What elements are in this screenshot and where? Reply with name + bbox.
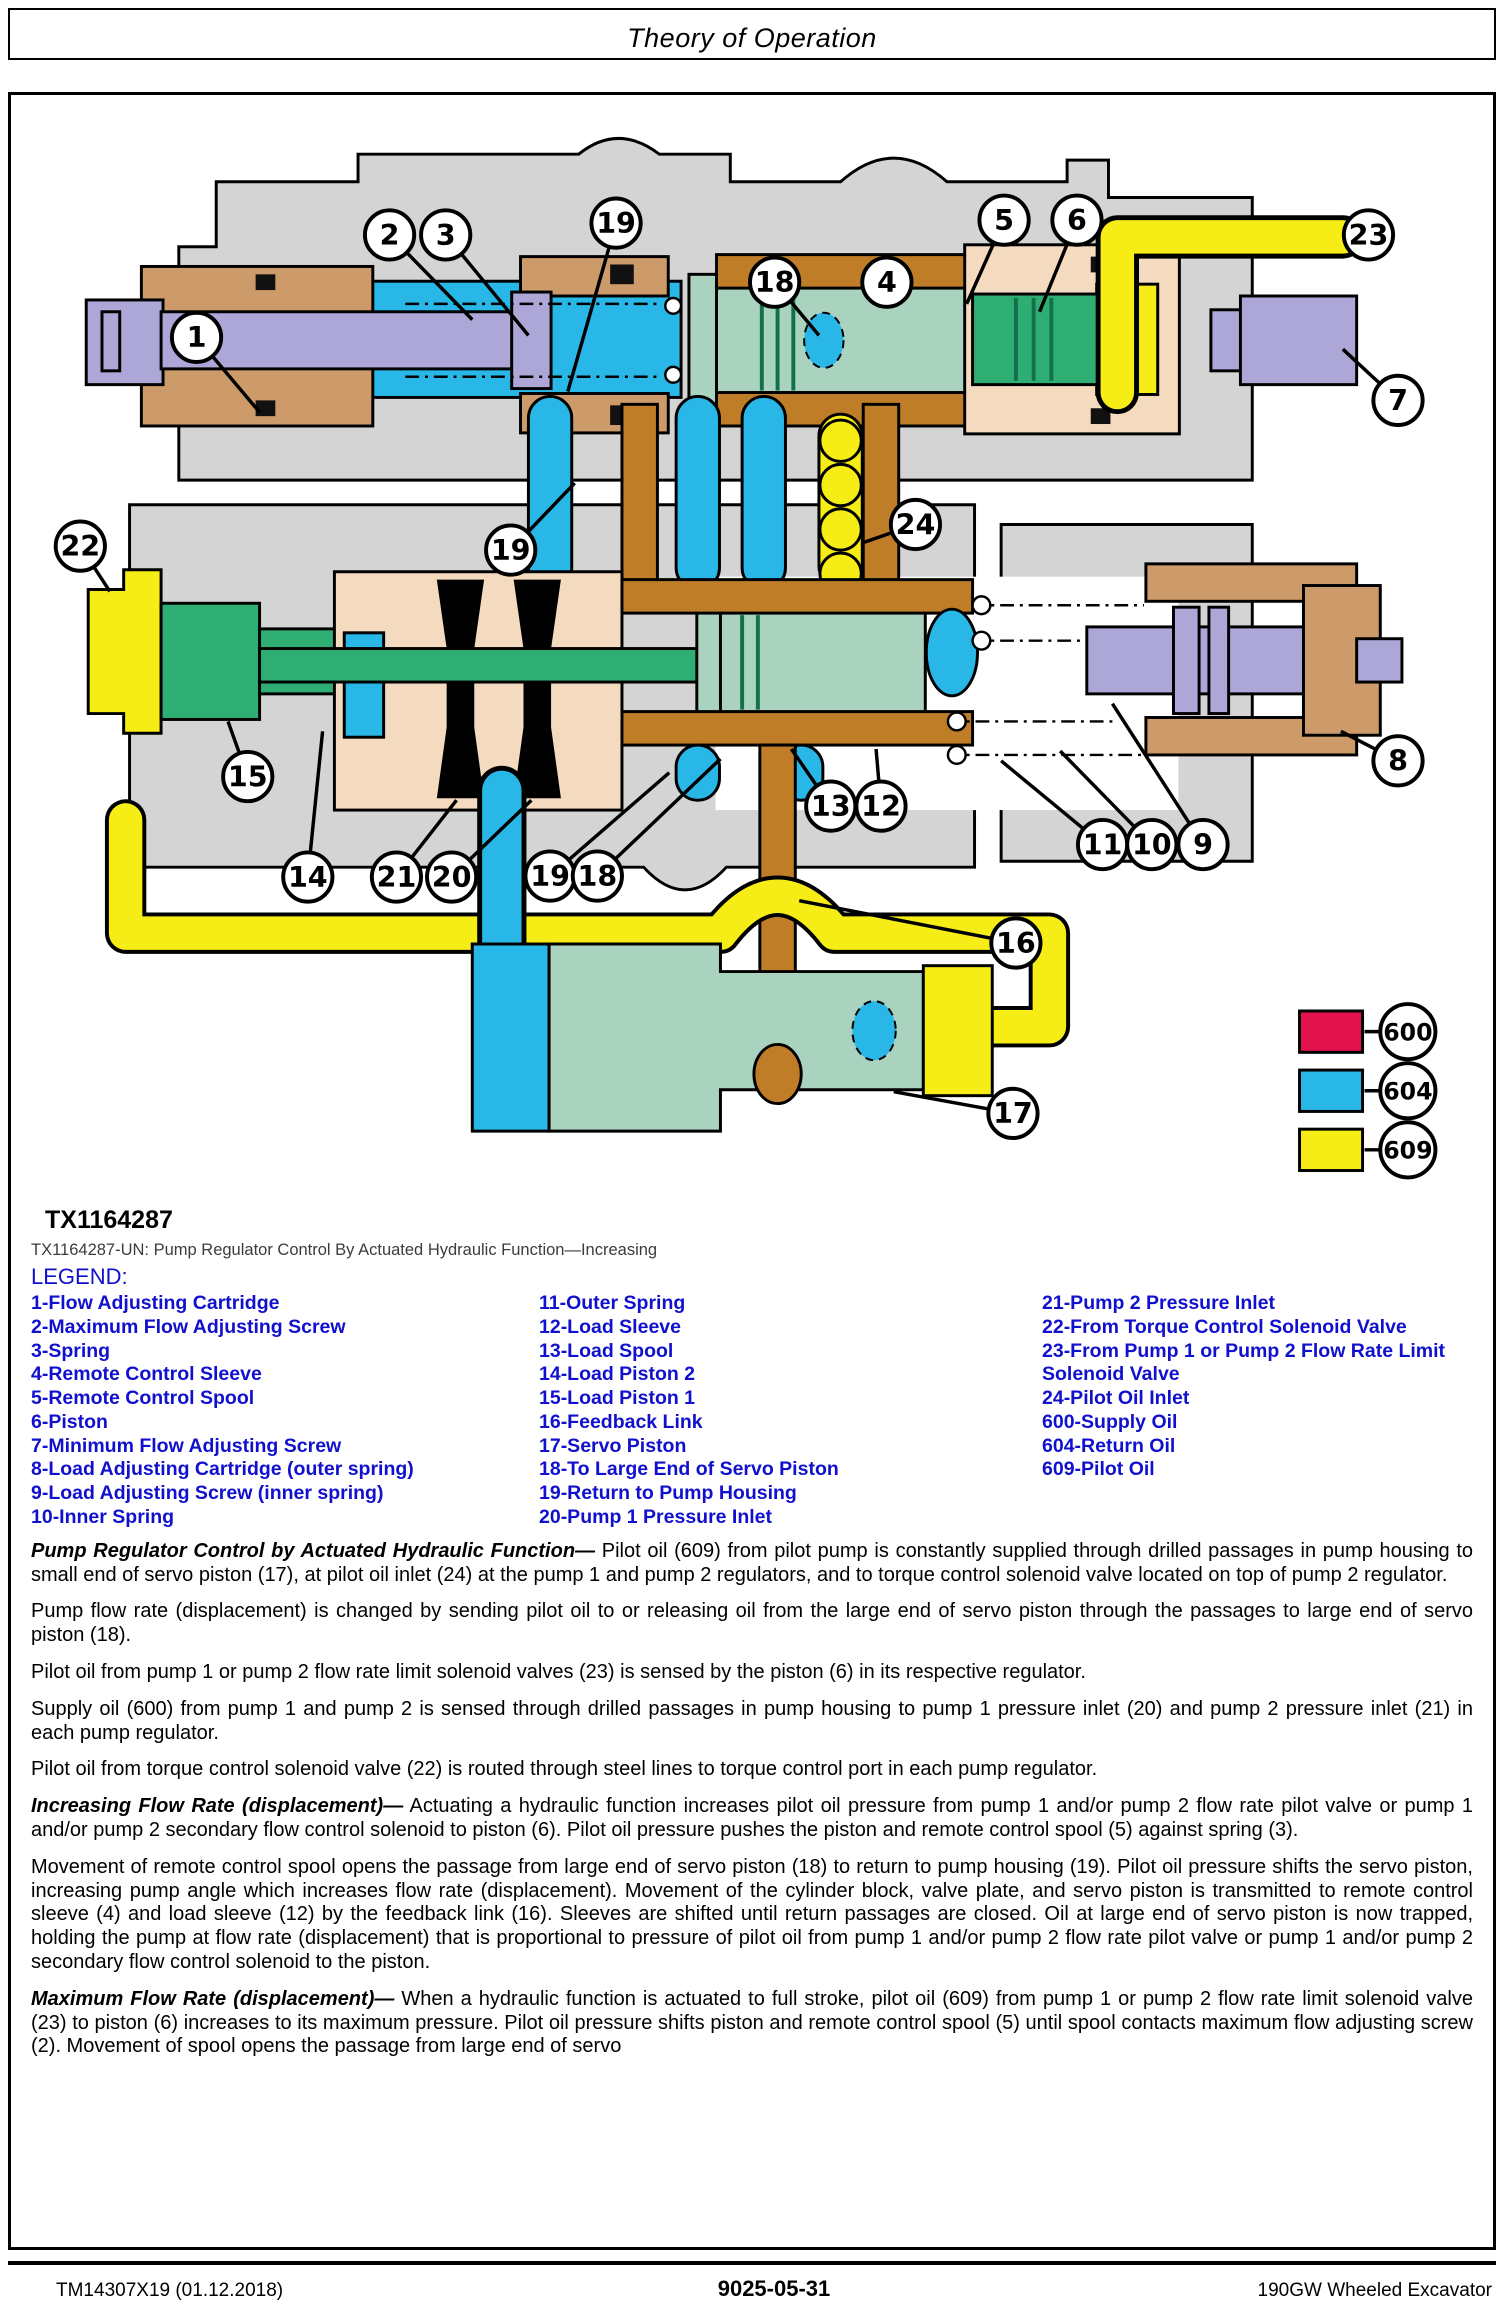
legend-item: 14-Load Piston 2 xyxy=(539,1363,1034,1387)
header-box: Theory of Operation xyxy=(8,8,1496,60)
legend-column-3: 21-Pump 2 Pressure Inlet 22-From Torque … xyxy=(1042,1292,1473,1530)
legend-item: 12-Load Sleeve xyxy=(539,1316,1034,1340)
legend-item: 23-From Pump 1 or Pump 2 Flow Rate Limit… xyxy=(1042,1340,1473,1388)
svg-text:3: 3 xyxy=(436,218,456,252)
max-flow-adjusting-screw-head xyxy=(86,300,163,385)
paragraph-lead: Pump Regulator Control by Actuated Hydra… xyxy=(31,1540,595,1562)
color-key xyxy=(1300,1011,1363,1171)
svg-text:18: 18 xyxy=(755,265,795,299)
legend-item: 3-Spring xyxy=(31,1340,531,1364)
svg-text:13: 13 xyxy=(811,789,851,823)
svg-text:604: 604 xyxy=(1383,1078,1432,1106)
paragraph: Increasing Flow Rate (displacement)— Act… xyxy=(31,1795,1473,1843)
legend-item: 17-Servo Piston xyxy=(539,1435,1034,1459)
figure-id: TX1164287 xyxy=(45,1206,1473,1235)
figure: 1231918456237221924151421201918131211109… xyxy=(31,101,1469,1204)
paragraph-lead: Increasing Flow Rate (displacement)— xyxy=(31,1795,403,1817)
legend-item: 5-Remote Control Spool xyxy=(31,1387,531,1411)
legend-item: 1-Flow Adjusting Cartridge xyxy=(31,1292,531,1316)
svg-text:11: 11 xyxy=(1083,827,1123,861)
legend-item: 24-Pilot Oil Inlet xyxy=(1042,1387,1473,1411)
torque-control-inlet-cap xyxy=(88,570,161,733)
body-text: Pump Regulator Control by Actuated Hydra… xyxy=(31,1540,1473,2059)
paragraph: Maximum Flow Rate (displacement)— When a… xyxy=(31,1988,1473,2059)
legend-column-1: 1-Flow Adjusting Cartridge 2-Maximum Flo… xyxy=(31,1292,531,1530)
paragraph: Pump flow rate (displacement) is changed… xyxy=(31,1600,1473,1648)
legend-item: 21-Pump 2 Pressure Inlet xyxy=(1042,1292,1473,1316)
svg-text:19: 19 xyxy=(596,206,636,240)
legend-item: 8-Load Adjusting Cartridge (outer spring… xyxy=(31,1458,531,1482)
legend-item: 609-Pilot Oil xyxy=(1042,1458,1473,1482)
svg-text:7: 7 xyxy=(1388,383,1408,417)
legend-item: 6-Piston xyxy=(31,1411,531,1435)
svg-text:10: 10 xyxy=(1132,827,1172,861)
svg-text:14: 14 xyxy=(288,860,328,894)
svg-text:18: 18 xyxy=(577,859,617,893)
footer-page-number: 9025-05-31 xyxy=(476,2276,1072,2302)
svg-text:15: 15 xyxy=(228,759,268,793)
pump-regulator-diagram: 1231918456237221924151421201918131211109… xyxy=(31,101,1469,1204)
legend-item: 16-Feedback Link xyxy=(539,1411,1034,1435)
paragraph: Pilot oil from pump 1 or pump 2 flow rat… xyxy=(31,1661,1473,1685)
legend-item: 600-Supply Oil xyxy=(1042,1411,1473,1435)
return-oil-swatch xyxy=(1300,1070,1363,1111)
load-sleeve xyxy=(622,580,973,613)
svg-text:6: 6 xyxy=(1067,203,1087,237)
supply-oil-swatch xyxy=(1300,1011,1363,1052)
legend-item: 20-Pump 1 Pressure Inlet xyxy=(539,1506,1034,1530)
legend-item: 22-From Torque Control Solenoid Valve xyxy=(1042,1316,1473,1340)
svg-text:16: 16 xyxy=(996,926,1036,960)
legend-title: LEGEND: xyxy=(31,1264,1473,1290)
legend-item: 4-Remote Control Sleeve xyxy=(31,1363,531,1387)
legend-item: 7-Minimum Flow Adjusting Screw xyxy=(31,1435,531,1459)
svg-text:21: 21 xyxy=(377,860,417,894)
legend-item: 13-Load Spool xyxy=(539,1340,1034,1364)
legend-item: 11-Outer Spring xyxy=(539,1292,1034,1316)
svg-text:12: 12 xyxy=(861,789,901,823)
load-spool xyxy=(720,611,925,713)
footer-manual-id: TM14307X19 (01.12.2018) xyxy=(8,2280,476,2302)
servo-large-end-chamber xyxy=(923,966,992,1096)
svg-text:9: 9 xyxy=(1193,827,1213,861)
legend-item: 9-Load Adjusting Screw (inner spring) xyxy=(31,1482,531,1506)
legend-column-2: 11-Outer Spring 12-Load Sleeve 13-Load S… xyxy=(539,1292,1034,1530)
legend-item: 19-Return to Pump Housing xyxy=(539,1482,1034,1506)
svg-text:2: 2 xyxy=(380,218,400,252)
svg-text:19: 19 xyxy=(530,859,570,893)
svg-text:23: 23 xyxy=(1349,218,1389,252)
load-piston-1 xyxy=(161,603,259,719)
svg-text:1: 1 xyxy=(187,320,207,354)
svg-text:5: 5 xyxy=(994,203,1014,237)
svg-text:19: 19 xyxy=(491,533,531,567)
paragraph: Pilot oil from torque control solenoid v… xyxy=(31,1758,1473,1782)
piston xyxy=(973,294,1099,385)
paragraph-lead: Maximum Flow Rate (displacement)— xyxy=(31,1988,394,2010)
paragraph: Movement of remote control spool opens t… xyxy=(31,1856,1473,1975)
footer-rule xyxy=(8,2261,1496,2265)
content-box: 1231918456237221924151421201918131211109… xyxy=(8,92,1496,2250)
legend-item: 2-Maximum Flow Adjusting Screw xyxy=(31,1316,531,1340)
svg-text:600: 600 xyxy=(1383,1019,1432,1047)
footer: TM14307X19 (01.12.2018) 9025-05-31 190GW… xyxy=(8,2276,1496,2302)
svg-text:20: 20 xyxy=(432,860,472,894)
page-title: Theory of Operation xyxy=(627,23,877,58)
svg-text:8: 8 xyxy=(1388,744,1408,778)
svg-text:22: 22 xyxy=(60,529,100,563)
legend-item: 18-To Large End of Servo Piston xyxy=(539,1458,1034,1482)
legend-item: 10-Inner Spring xyxy=(31,1506,531,1530)
legend-item: 604-Return Oil xyxy=(1042,1435,1473,1459)
svg-text:24: 24 xyxy=(896,507,936,541)
paragraph: Supply oil (600) from pump 1 and pump 2 … xyxy=(31,1698,1473,1746)
pilot-oil-swatch xyxy=(1300,1129,1363,1170)
legend-item: 15-Load Piston 1 xyxy=(539,1387,1034,1411)
load-piston-rod xyxy=(260,649,723,682)
footer-model: 190GW Wheeled Excavator xyxy=(1072,2280,1496,2302)
upper-regulator xyxy=(86,237,1356,434)
legend: 1-Flow Adjusting Cartridge 2-Maximum Flo… xyxy=(31,1292,1473,1530)
figure-caption: TX1164287-UN: Pump Regulator Control By … xyxy=(31,1241,1473,1260)
svg-text:4: 4 xyxy=(877,265,897,299)
paragraph: Pump Regulator Control by Actuated Hydra… xyxy=(31,1540,1473,1588)
svg-text:609: 609 xyxy=(1383,1137,1432,1165)
svg-text:17: 17 xyxy=(993,1096,1033,1130)
min-flow-adjusting-screw xyxy=(1240,296,1356,385)
